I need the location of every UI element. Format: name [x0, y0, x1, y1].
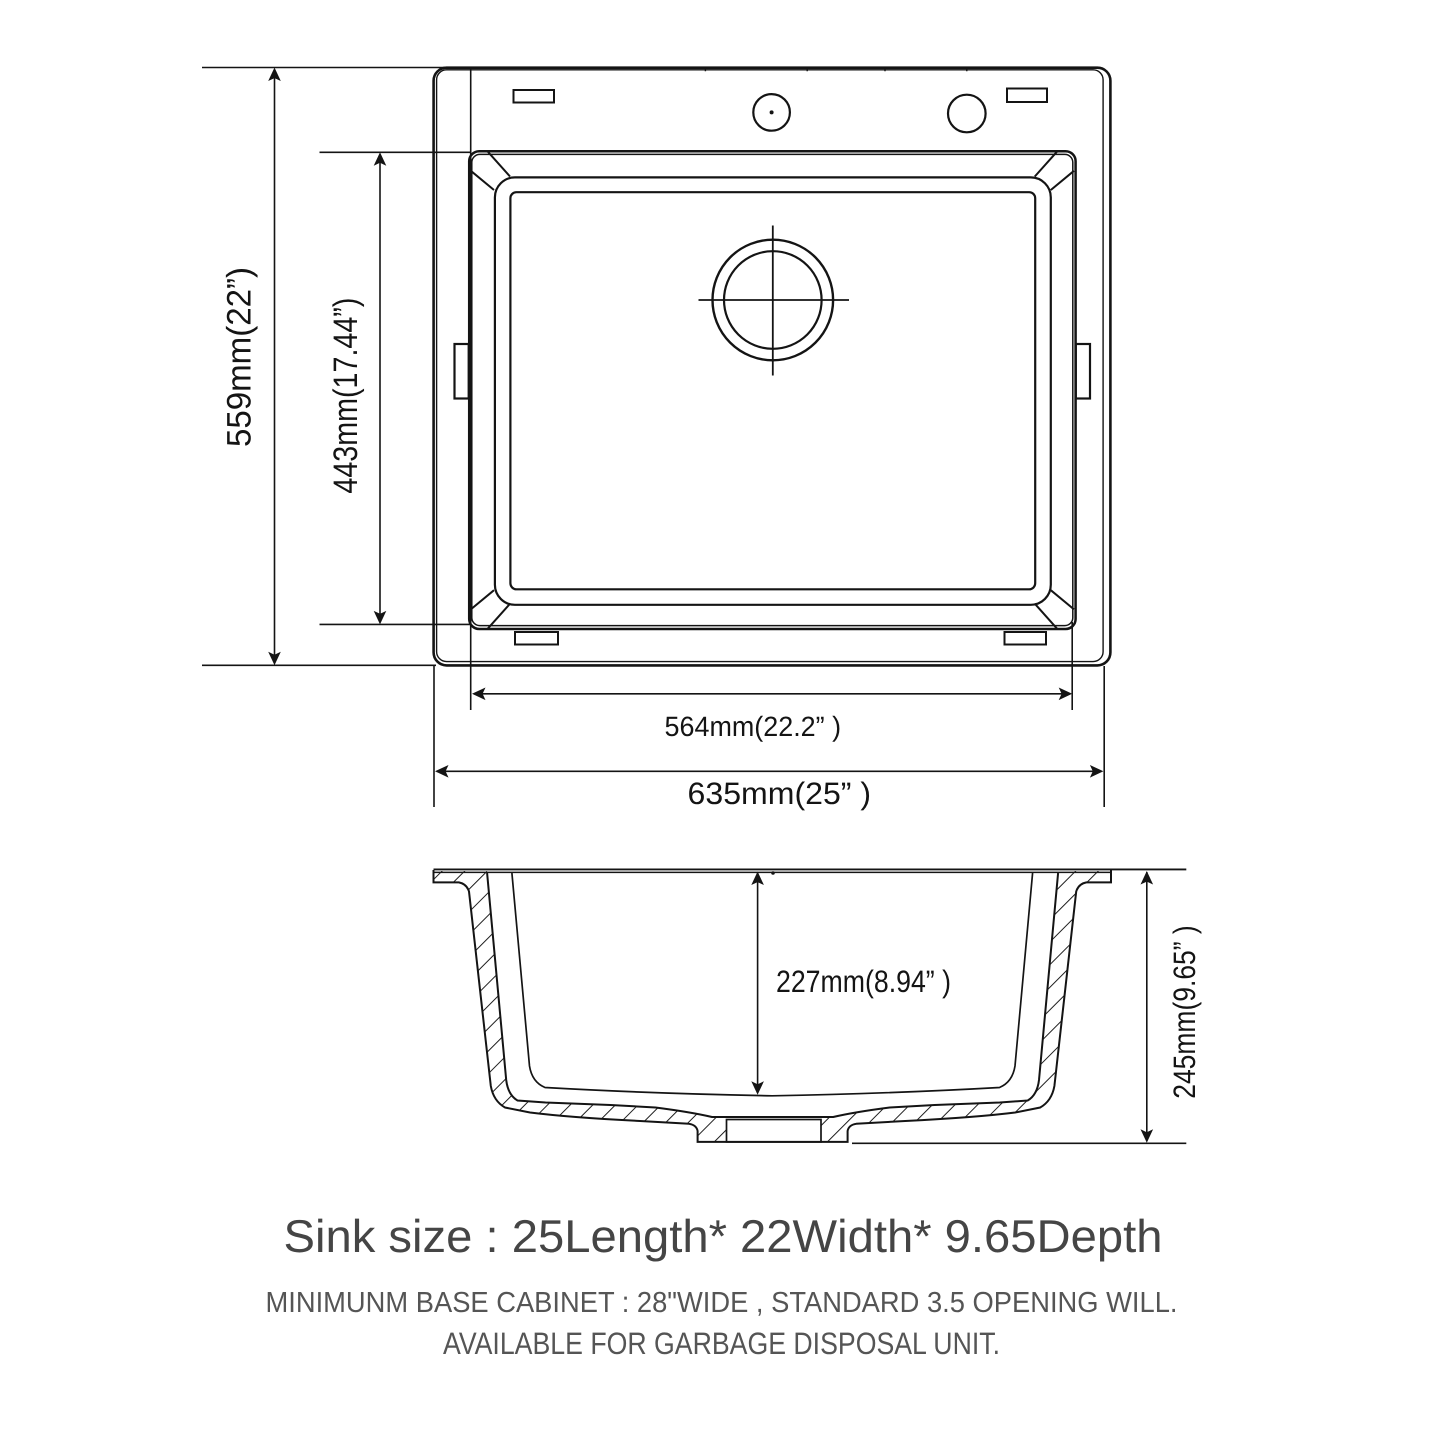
svg-text:635mm(25” ): 635mm(25” ): [688, 776, 872, 811]
svg-text:227mm(8.94” ): 227mm(8.94” ): [776, 964, 951, 999]
svg-text:MINIMUNM BASE CABINET : 28"WID: MINIMUNM BASE CABINET : 28"WIDE , STANDA…: [266, 1287, 1178, 1319]
svg-text:559mm(22”): 559mm(22”): [221, 267, 259, 447]
svg-text:Sink size : 25Length* 22Widt: Sink size : 25Length* 22Width* 9.65Depth: [284, 1210, 1163, 1262]
svg-text:443mm(17.44”): 443mm(17.44”): [327, 298, 365, 494]
svg-text:245mm(9.65” ): 245mm(9.65” ): [1167, 925, 1202, 1099]
svg-text:AVAILABLE FOR GARBAGE DISPOSAL: AVAILABLE FOR GARBAGE DISPOSAL UNIT.: [443, 1326, 1000, 1361]
svg-text:564mm(22.2” ): 564mm(22.2” ): [665, 711, 842, 742]
